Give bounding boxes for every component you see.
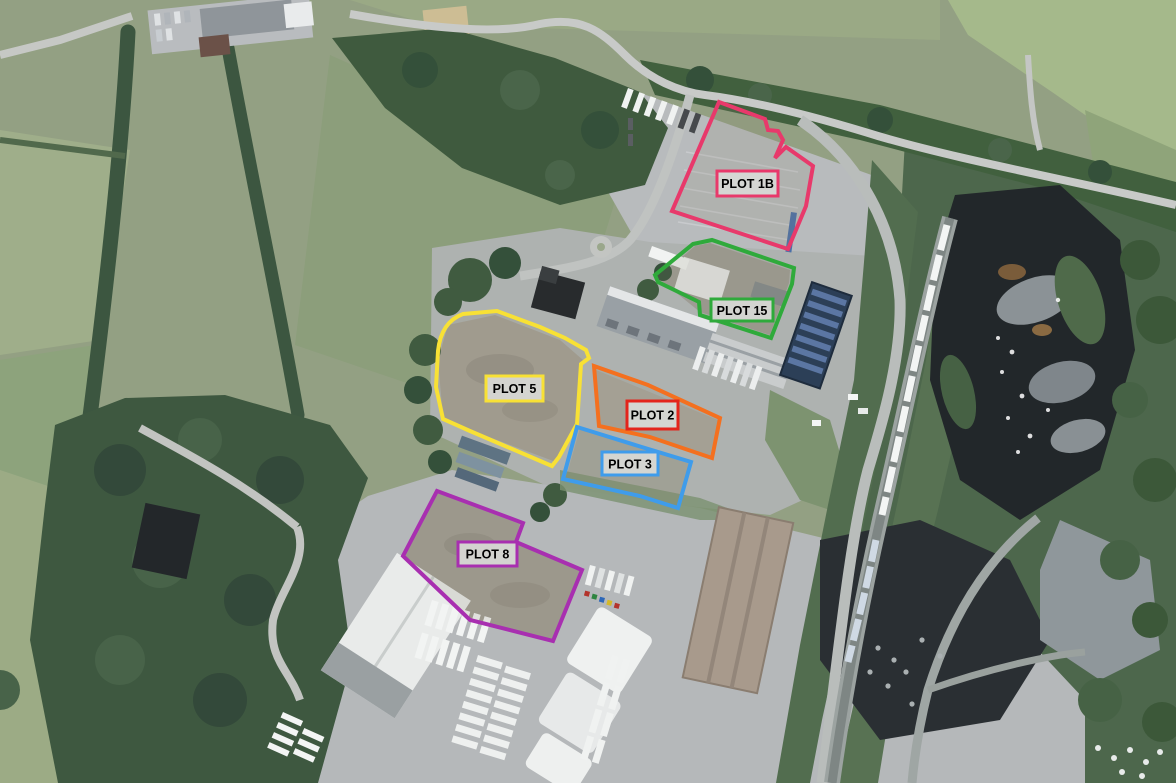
plot-15-label[interactable]: PLOT 15	[711, 299, 773, 321]
plot-5-label-text: PLOT 5	[493, 382, 537, 396]
plot-2-label-text: PLOT 2	[631, 409, 675, 423]
plot-1b-label-text: PLOT 1B	[721, 177, 774, 191]
plot-2-label[interactable]: PLOT 2	[627, 401, 678, 429]
plot-3-label-text: PLOT 3	[608, 458, 652, 472]
plot-8-label-text: PLOT 8	[466, 548, 510, 562]
plot-5-label[interactable]: PLOT 5	[486, 376, 543, 401]
plot-8-label[interactable]: PLOT 8	[458, 542, 517, 566]
plot-1b-label[interactable]: PLOT 1B	[717, 171, 778, 196]
aerial-site-map: PLOT 1B PLOT 15 PLOT 5 PLOT 2	[0, 0, 1176, 783]
plot-15-label-text: PLOT 15	[717, 304, 768, 318]
aerial-photo-canvas: PLOT 1B PLOT 15 PLOT 5 PLOT 2	[0, 0, 1176, 783]
plot-3-label[interactable]: PLOT 3	[602, 452, 658, 475]
